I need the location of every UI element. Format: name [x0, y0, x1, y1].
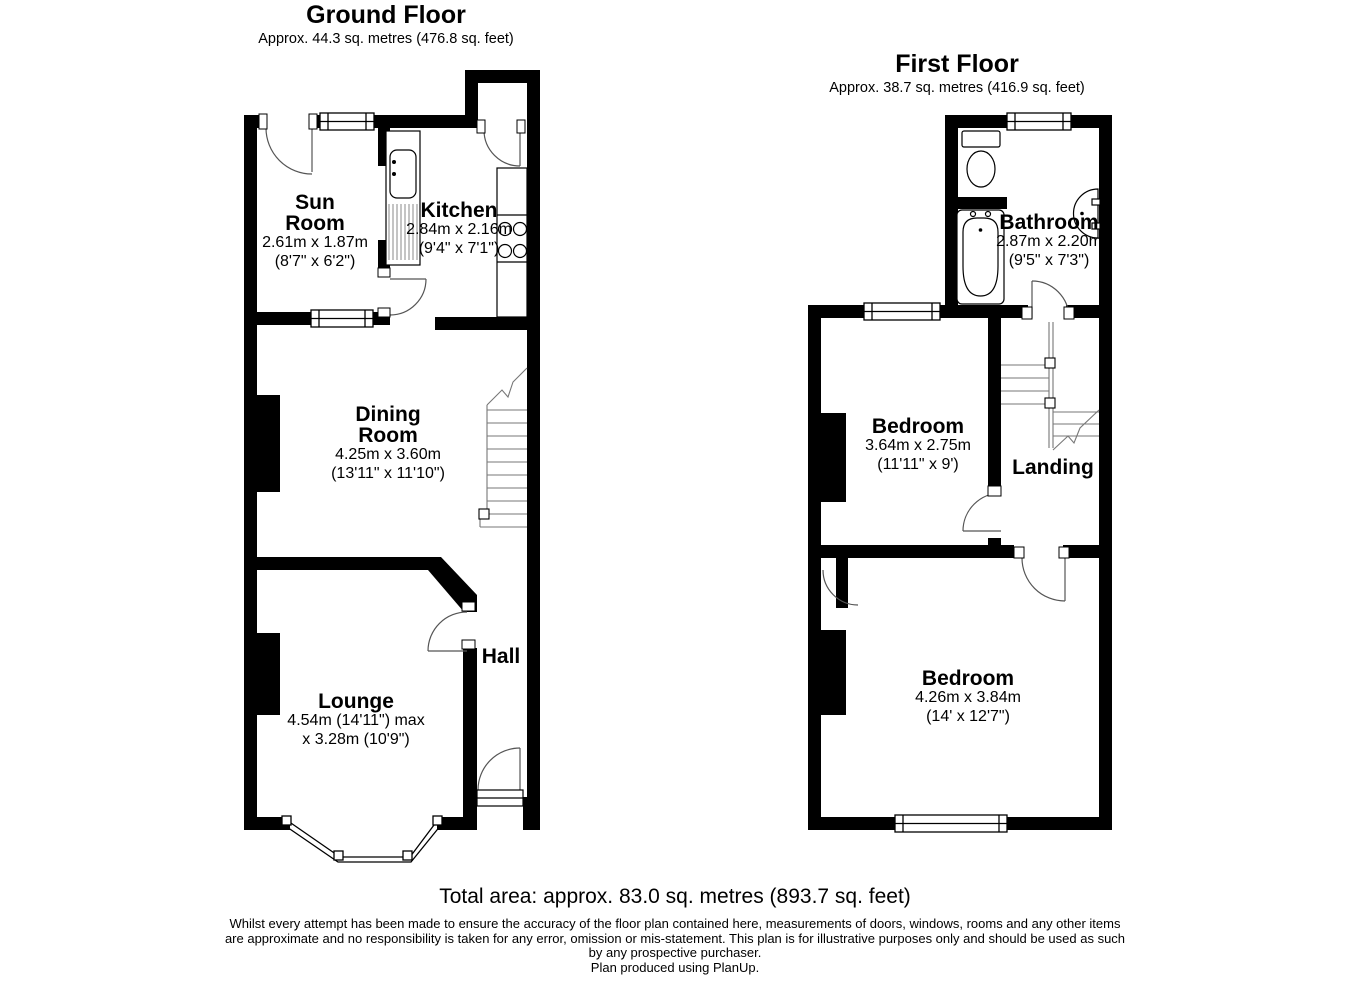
door	[484, 130, 520, 166]
dining-room-label: Dining Room 4.25m x 3.60m (13'11" x 11'1…	[331, 404, 445, 483]
room-dimensions-metric: 4.26m x 3.84m	[915, 689, 1021, 708]
ground-floor-stairs	[479, 368, 527, 527]
room-dimensions-imperial: (13'11" x 11'10")	[331, 465, 445, 484]
room-name: Kitchen	[406, 200, 512, 221]
floorplan-canvas: Ground Floor Approx. 44.3 sq. metres (47…	[0, 0, 1350, 982]
room-name: Sun	[262, 192, 368, 213]
room-dimensions-metric: 2.87m x 2.20m	[996, 233, 1102, 252]
door	[1022, 558, 1065, 601]
credit-text: Plan produced using PlanUp.	[0, 961, 1350, 976]
bathroom-label: Bathroom 2.87m x 2.20m (9'5" x 7'3")	[996, 212, 1102, 270]
door	[1032, 281, 1069, 318]
room-dimensions-imperial: (11'11" x 9')	[865, 456, 971, 475]
hall-label: Hall	[482, 646, 521, 667]
room-name: Room	[331, 425, 445, 446]
room-dimensions-metric: 2.84m x 2.16m	[406, 221, 512, 240]
first-floor-stairs	[1001, 322, 1099, 450]
room-dimensions-imperial: (9'5" x 7'3")	[996, 252, 1102, 271]
window	[311, 310, 373, 327]
room-dimensions-imperial: (9'4" x 7'1")	[406, 240, 512, 259]
landing-label: Landing	[1012, 457, 1094, 478]
disclaimer-line: by any prospective purchaser.	[0, 946, 1350, 961]
chimney-breast	[821, 413, 846, 502]
bedroom-back-label: Bedroom 4.26m x 3.84m (14' x 12'7")	[915, 668, 1021, 726]
bay-window	[282, 816, 442, 862]
door	[390, 279, 426, 315]
room-name: Lounge	[287, 691, 424, 712]
sun-room-label: Sun Room 2.61m x 1.87m (8'7" x 6'2")	[262, 192, 368, 271]
room-name: Bedroom	[865, 416, 971, 437]
footer: Total area: approx. 83.0 sq. metres (893…	[0, 884, 1350, 975]
first-floor-header: First Floor Approx. 38.7 sq. metres (416…	[829, 51, 1085, 99]
ground-floor-area: Approx. 44.3 sq. metres (476.8 sq. feet)	[258, 29, 514, 50]
first-floor-area: Approx. 38.7 sq. metres (416.9 sq. feet)	[829, 78, 1085, 99]
chimney-breast	[257, 395, 280, 492]
ground-floor-title: Ground Floor	[258, 2, 514, 29]
front-door	[477, 748, 523, 806]
disclaimer-line: are approximate and no responsibility is…	[0, 932, 1350, 947]
room-dimensions-metric: 4.25m x 3.60m	[331, 446, 445, 465]
room-dimensions-imperial: (14' x 12'7")	[915, 708, 1021, 727]
window	[320, 113, 374, 130]
room-name: Bedroom	[915, 668, 1021, 689]
room-name: Room	[262, 213, 368, 234]
door	[266, 128, 312, 174]
ground-floor-header: Ground Floor Approx. 44.3 sq. metres (47…	[258, 2, 514, 50]
bedroom-front-label: Bedroom 3.64m x 2.75m (11'11" x 9')	[865, 416, 971, 474]
room-name: Bathroom	[996, 212, 1102, 233]
chimney-breast	[821, 630, 846, 715]
window	[1007, 113, 1071, 130]
chimney-breast	[257, 633, 280, 715]
room-dimensions-metric: 2.61m x 1.87m	[262, 234, 368, 253]
disclaimer-line: Whilst every attempt has been made to en…	[0, 917, 1350, 932]
window	[864, 303, 940, 320]
total-area-text: Total area: approx. 83.0 sq. metres (893…	[0, 884, 1350, 909]
room-name: Dining	[331, 404, 445, 425]
door	[428, 612, 467, 651]
room-name: Landing	[1012, 457, 1094, 478]
kitchen-label: Kitchen 2.84m x 2.16m (9'4" x 7'1")	[406, 200, 512, 258]
door	[963, 493, 1001, 531]
floorplan-drawing	[0, 0, 1350, 982]
disclaimer-text: Whilst every attempt has been made to en…	[0, 917, 1350, 975]
room-dimensions-imperial: (8'7" x 6'2")	[262, 253, 368, 272]
room-dimensions-metric: 3.64m x 2.75m	[865, 437, 971, 456]
toilet-icon	[962, 131, 1000, 187]
window	[895, 815, 1007, 832]
room-dimensions-imperial: x 3.28m (10'9")	[287, 731, 424, 750]
lounge-label: Lounge 4.54m (14'11") max x 3.28m (10'9"…	[287, 691, 424, 749]
room-name: Hall	[482, 646, 521, 667]
first-floor-title: First Floor	[829, 51, 1085, 78]
room-dimensions-metric: 4.54m (14'11") max	[287, 712, 424, 731]
